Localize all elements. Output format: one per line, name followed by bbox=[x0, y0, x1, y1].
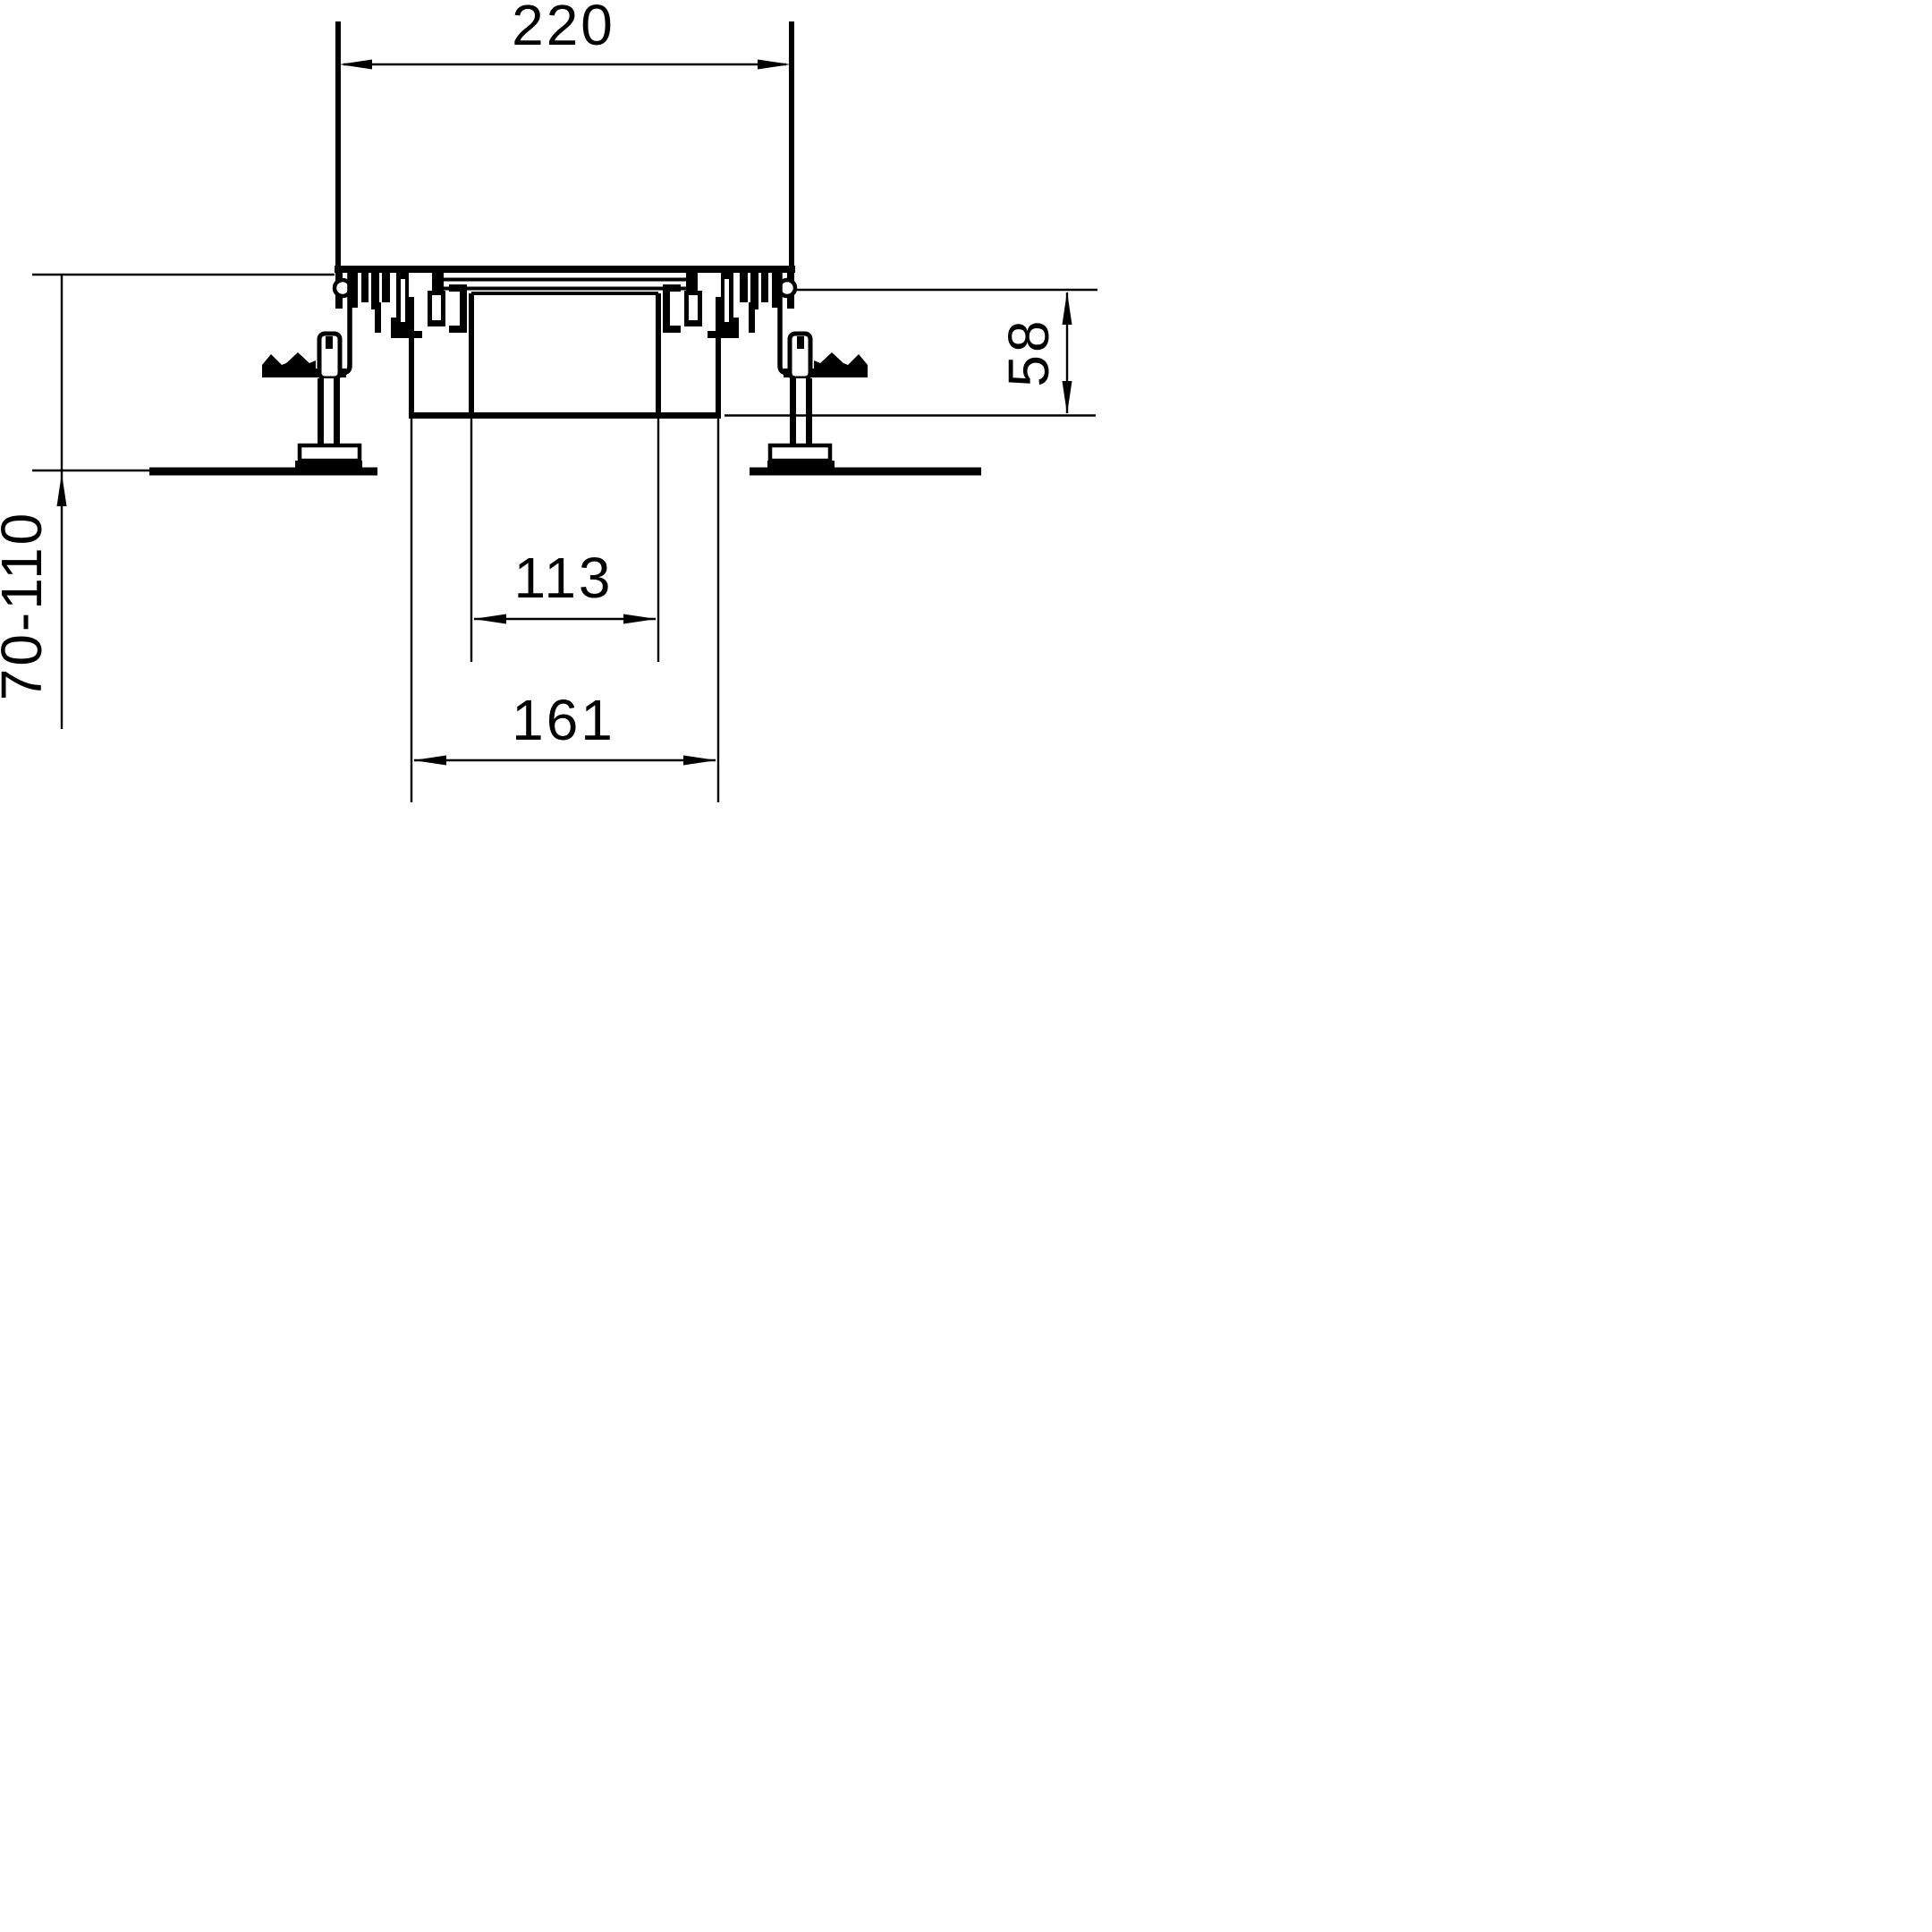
dim-70-110-arrow-up bbox=[57, 473, 67, 506]
dim-70-110-label: 70-110 bbox=[0, 511, 54, 701]
wing-nut-left bbox=[262, 352, 316, 377]
spindle-notch-right bbox=[797, 336, 804, 349]
dim-161-arrow-left bbox=[413, 756, 446, 766]
page-canvas: 220 bbox=[0, 0, 1932, 1932]
wing-nut-right bbox=[814, 352, 868, 377]
foot-stem-core-right bbox=[796, 378, 806, 445]
dim-58-label: 58 bbox=[996, 318, 1061, 386]
sub-plate-cap-right bbox=[686, 273, 698, 291]
dim-58-arrow-top bbox=[1063, 292, 1072, 325]
foot-plate-left bbox=[300, 445, 360, 461]
cover-plate bbox=[335, 266, 795, 273]
slab-lines bbox=[32, 470, 981, 471]
dim-220-arrow-right bbox=[758, 60, 791, 70]
foot-plate-right bbox=[770, 445, 830, 461]
box-bottom bbox=[409, 412, 721, 419]
duct-outline bbox=[338, 21, 792, 268]
dim-220-label: 220 bbox=[512, 0, 615, 57]
floor-box bbox=[409, 293, 721, 419]
dim-161-arrow-right bbox=[683, 756, 716, 766]
adjustable-foot-left bbox=[262, 334, 362, 469]
sub-plate-cap-left bbox=[432, 273, 444, 291]
dim-220-arrow-left bbox=[339, 60, 372, 70]
foot-stem-core-left bbox=[324, 378, 334, 445]
dim-113: 113 bbox=[471, 419, 658, 662]
dim-161: 161 bbox=[411, 419, 718, 802]
dim-113-arrow-right bbox=[623, 614, 657, 624]
spindle-notch-left bbox=[326, 336, 333, 349]
dim-70-110: 70-110 bbox=[0, 275, 67, 729]
dim-161-label: 161 bbox=[512, 688, 615, 752]
dim-113-label: 113 bbox=[513, 546, 613, 610]
dim-220: 220 bbox=[339, 0, 791, 70]
dim-113-arrow-left bbox=[473, 614, 506, 624]
adjustable-foot-right bbox=[767, 334, 868, 469]
technical-drawing: 220 bbox=[0, 0, 1932, 1932]
dim-58-arrow-bottom bbox=[1063, 381, 1072, 414]
